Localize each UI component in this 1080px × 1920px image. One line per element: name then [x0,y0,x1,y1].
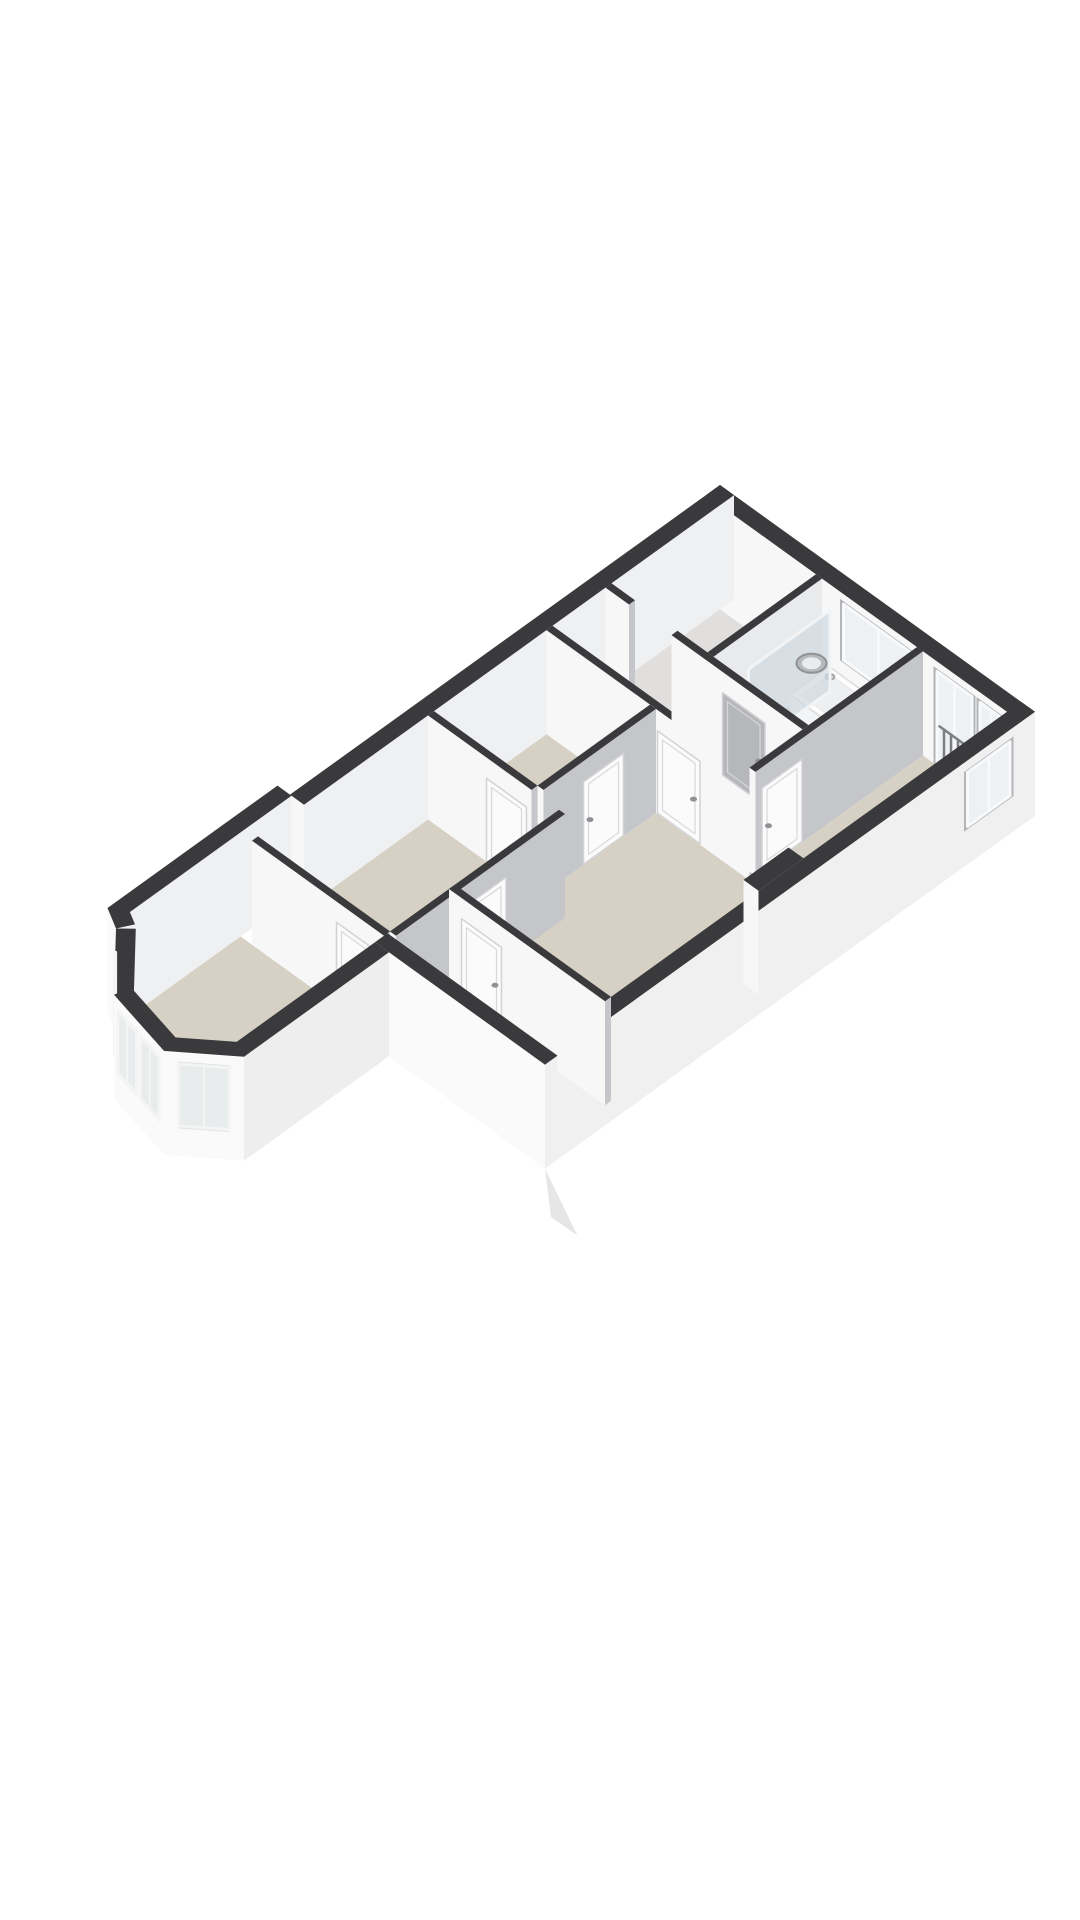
wash-basin [797,654,827,673]
floorplan-page [0,0,1080,1920]
bay-face-right [164,1037,246,1161]
floorplan-3d-view [0,0,1080,1920]
roof-wedge [545,1169,578,1236]
